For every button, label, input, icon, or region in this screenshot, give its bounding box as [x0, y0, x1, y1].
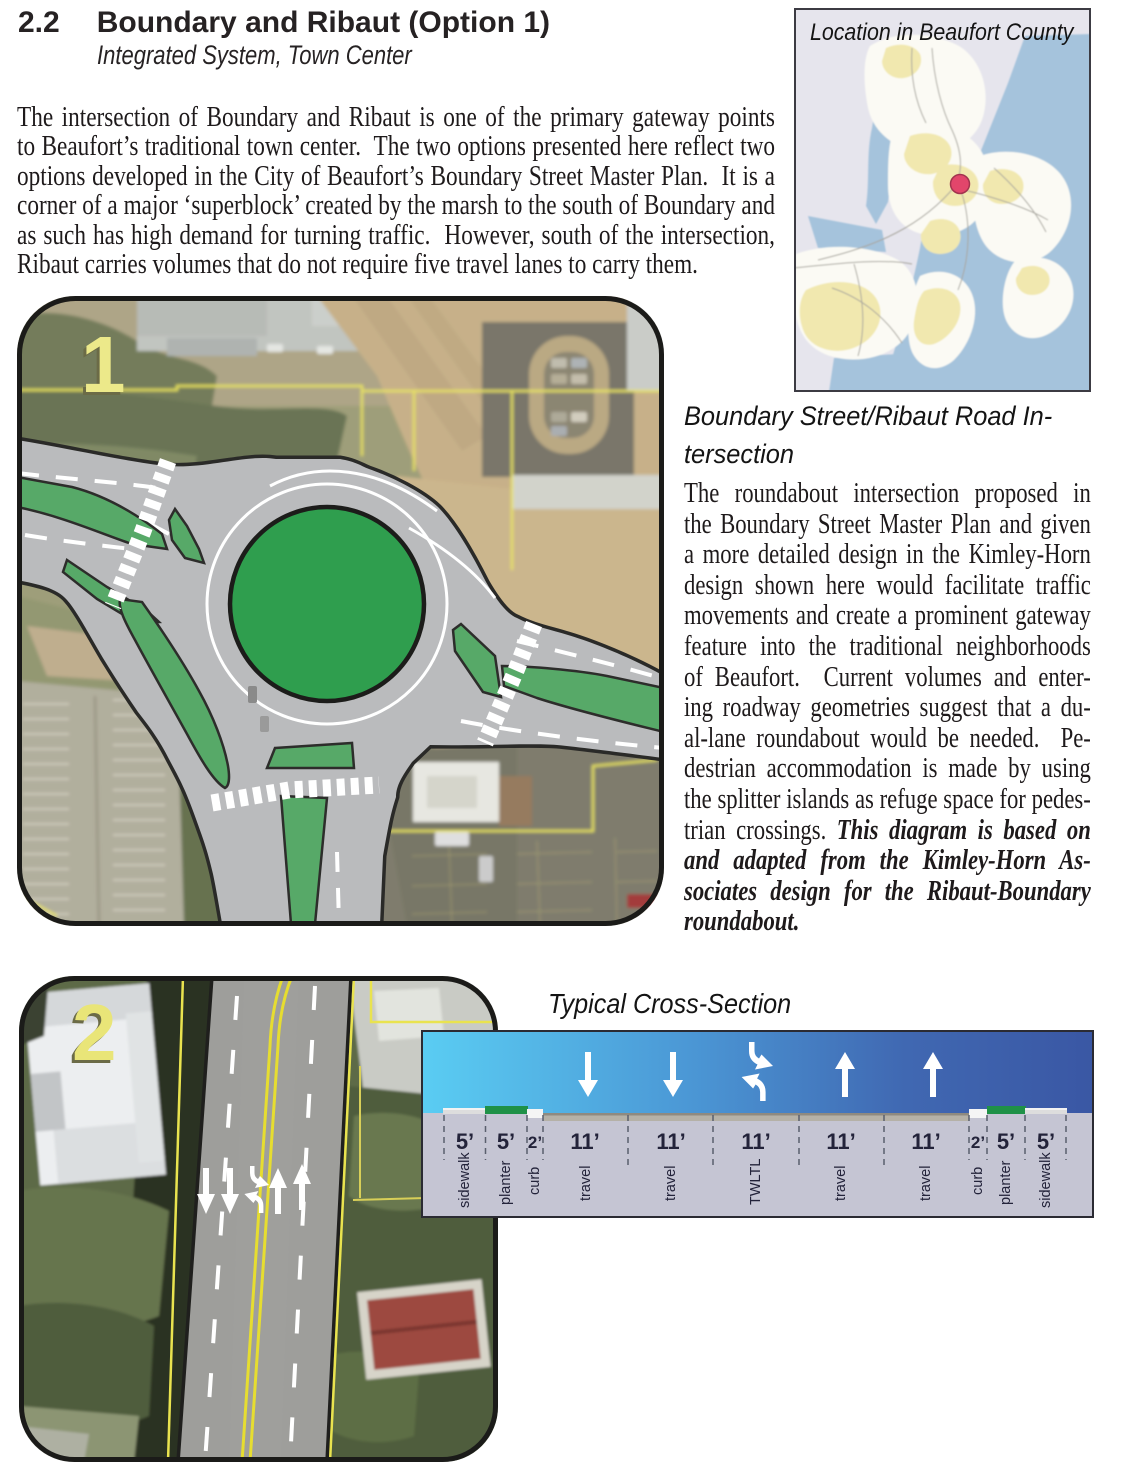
- svg-text:11’: 11’: [826, 1129, 855, 1154]
- svg-text:11’: 11’: [656, 1129, 685, 1154]
- svg-text:sidewalk: sidewalk: [457, 1152, 473, 1208]
- svg-text:sidewalk: sidewalk: [1038, 1152, 1054, 1208]
- svg-text:curb: curb: [527, 1167, 543, 1195]
- svg-text:5’: 5’: [1037, 1129, 1055, 1154]
- svg-text:travel: travel: [833, 1166, 849, 1201]
- svg-text:travel: travel: [578, 1166, 594, 1201]
- svg-text:TWLTL: TWLTL: [748, 1159, 764, 1205]
- svg-text:travel: travel: [918, 1166, 934, 1201]
- svg-text:planter: planter: [998, 1160, 1014, 1205]
- svg-text:5’: 5’: [997, 1129, 1015, 1154]
- svg-text:2: 2: [72, 988, 117, 1077]
- svg-text:2’: 2’: [528, 1133, 542, 1152]
- svg-text:1: 1: [81, 320, 126, 409]
- svg-text:Location in Beaufort County: Location in Beaufort County: [810, 18, 1075, 45]
- svg-text:travel: travel: [663, 1166, 679, 1201]
- svg-text:curb: curb: [970, 1167, 986, 1195]
- svg-text:11’: 11’: [911, 1129, 940, 1154]
- svg-text:11’: 11’: [741, 1129, 770, 1154]
- svg-text:2’: 2’: [971, 1133, 985, 1152]
- svg-text:11’: 11’: [570, 1129, 599, 1154]
- svg-text:5’: 5’: [497, 1129, 515, 1154]
- svg-text:planter: planter: [498, 1160, 514, 1205]
- svg-text:5’: 5’: [456, 1129, 474, 1154]
